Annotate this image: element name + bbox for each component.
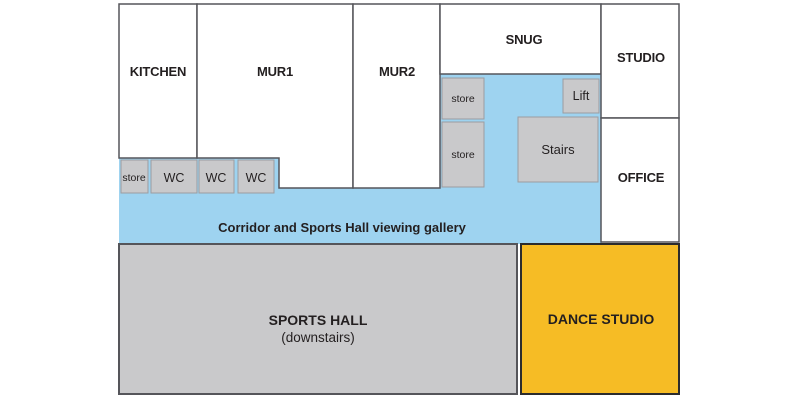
studio-label: STUDIO — [617, 50, 665, 65]
kitchen-label: KITCHEN — [130, 64, 186, 79]
mur1-label: MUR1 — [257, 64, 293, 79]
sports-hall-sublabel: (downstairs) — [281, 330, 355, 345]
dance-studio-label: DANCE STUDIO — [548, 311, 655, 327]
floor-plan-canvas: KITCHEN MUR1 MUR2 SNUG STUDIO OFFICE sto… — [0, 0, 800, 400]
stairs-label: Stairs — [541, 142, 575, 157]
wc-2-label: WC — [206, 171, 227, 185]
corridor-label: Corridor and Sports Hall viewing gallery — [218, 220, 467, 235]
snug-label: SNUG — [506, 32, 543, 47]
store-left-label: store — [122, 172, 146, 184]
sports-hall-label: SPORTS HALL — [269, 312, 368, 328]
floor-plan: KITCHEN MUR1 MUR2 SNUG STUDIO OFFICE sto… — [0, 0, 800, 400]
wc-3-label: WC — [246, 171, 267, 185]
store-upper-label: store — [451, 93, 475, 105]
wc-1-label: WC — [164, 171, 185, 185]
mur2-label: MUR2 — [379, 64, 415, 79]
room-kitchen — [119, 4, 197, 158]
room-mur2 — [353, 4, 440, 188]
store-lower-label: store — [451, 149, 475, 161]
lift-label: Lift — [573, 89, 590, 103]
office-label: OFFICE — [618, 170, 665, 185]
